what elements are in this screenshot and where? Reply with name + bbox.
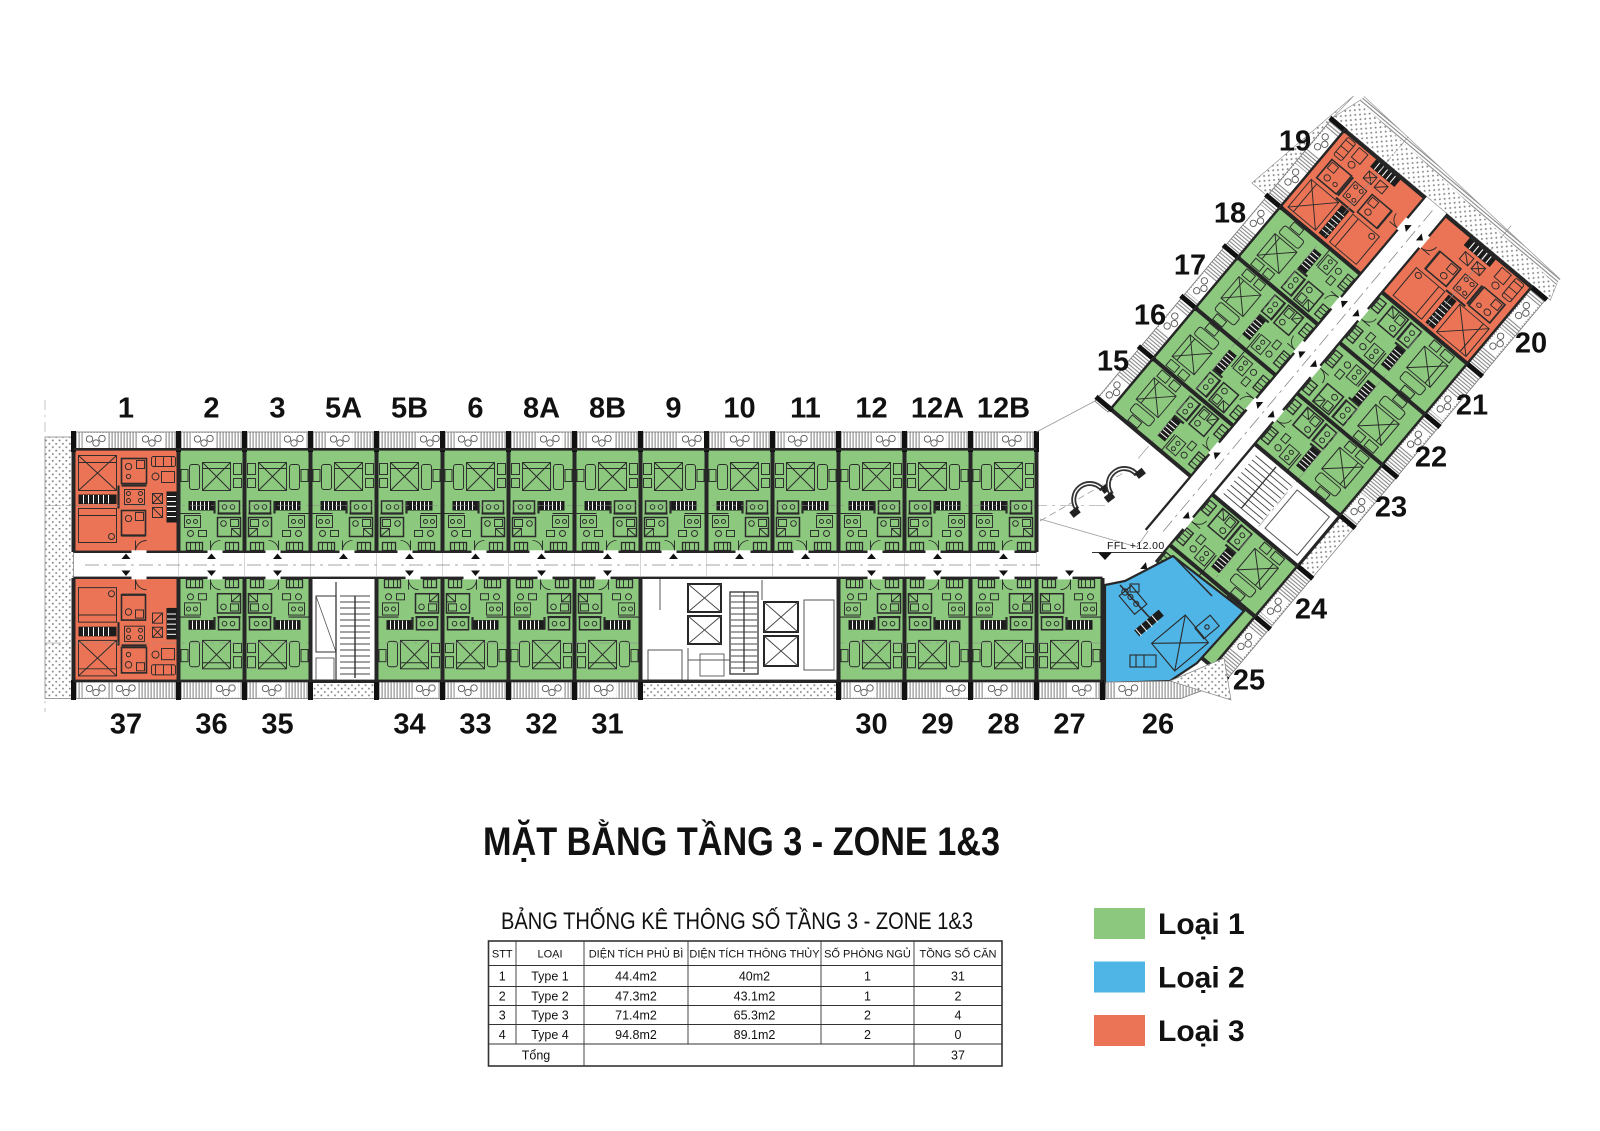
svg-text:24: 24 — [1295, 594, 1327, 626]
svg-text:5B: 5B — [391, 393, 428, 425]
svg-text:8A: 8A — [523, 393, 560, 425]
svg-text:12B: 12B — [977, 393, 1030, 425]
svg-text:12: 12 — [855, 393, 887, 425]
svg-text:4: 4 — [955, 1009, 962, 1023]
svg-text:35: 35 — [261, 709, 293, 741]
svg-text:19: 19 — [1279, 126, 1311, 158]
svg-text:Loại 2: Loại 2 — [1158, 962, 1245, 995]
svg-text:Loại 3: Loại 3 — [1158, 1015, 1245, 1048]
svg-text:44.4m2: 44.4m2 — [615, 970, 657, 984]
svg-text:15: 15 — [1097, 346, 1129, 378]
svg-text:23: 23 — [1375, 492, 1407, 524]
svg-text:MẶT BẰNG TẦNG 3 - ZONE 1&3: MẶT BẰNG TẦNG 3 - ZONE 1&3 — [483, 818, 1000, 864]
svg-text:LOẠI: LOẠI — [537, 949, 562, 961]
svg-text:2: 2 — [955, 990, 962, 1004]
svg-text:4: 4 — [499, 1028, 506, 1042]
svg-text:1: 1 — [499, 970, 506, 984]
svg-text:47.3m2: 47.3m2 — [615, 990, 657, 1004]
svg-text:21: 21 — [1456, 390, 1488, 422]
svg-text:Type 2: Type 2 — [531, 990, 569, 1004]
svg-text:5A: 5A — [325, 393, 362, 425]
svg-text:BẢNG THỐNG KÊ THÔNG SỐ TẦNG 3: BẢNG THỐNG KÊ THÔNG SỐ TẦNG 3 - ZONE 1&3 — [501, 906, 973, 935]
svg-text:Tổng: Tổng — [522, 1049, 551, 1063]
svg-text:DIỆN TÍCH PHỦ BÌ: DIỆN TÍCH PHỦ BÌ — [589, 948, 684, 961]
svg-text:1: 1 — [864, 990, 871, 1004]
svg-text:2: 2 — [203, 393, 219, 425]
svg-text:20: 20 — [1515, 328, 1547, 360]
svg-text:Loại 1: Loại 1 — [1158, 908, 1245, 941]
svg-text:STT: STT — [492, 949, 513, 961]
svg-text:28: 28 — [987, 709, 1019, 741]
svg-text:Type 3: Type 3 — [531, 1009, 569, 1023]
svg-text:94.8m2: 94.8m2 — [615, 1028, 657, 1042]
svg-text:9: 9 — [665, 393, 681, 425]
svg-text:TỒNG SỐ CĂN: TỒNG SỐ CĂN — [919, 947, 996, 961]
svg-text:65.3m2: 65.3m2 — [734, 1009, 776, 1023]
svg-text:71.4m2: 71.4m2 — [615, 1009, 657, 1023]
svg-text:10: 10 — [723, 393, 755, 425]
svg-text:33: 33 — [459, 709, 491, 741]
svg-text:25: 25 — [1233, 665, 1265, 697]
svg-text:3: 3 — [499, 1009, 506, 1023]
svg-text:16: 16 — [1134, 300, 1166, 332]
svg-text:18: 18 — [1214, 198, 1246, 230]
svg-text:34: 34 — [393, 709, 425, 741]
svg-text:2: 2 — [499, 990, 506, 1004]
svg-text:37: 37 — [951, 1049, 965, 1063]
svg-text:2: 2 — [864, 1009, 871, 1023]
svg-text:2: 2 — [864, 1028, 871, 1042]
svg-text:36: 36 — [195, 709, 227, 741]
svg-text:8B: 8B — [589, 393, 626, 425]
svg-text:22: 22 — [1415, 442, 1447, 474]
svg-text:DIỆN TÍCH THÔNG THỦY: DIỆN TÍCH THÔNG THỦY — [689, 948, 820, 961]
svg-text:SỐ PHÒNG NGỦ: SỐ PHÒNG NGỦ — [824, 947, 911, 961]
svg-text:29: 29 — [921, 709, 953, 741]
svg-text:Type 4: Type 4 — [531, 1028, 569, 1042]
svg-text:89.1m2: 89.1m2 — [734, 1028, 776, 1042]
svg-text:31: 31 — [591, 709, 623, 741]
svg-text:43.1m2: 43.1m2 — [734, 990, 776, 1004]
svg-text:12A: 12A — [911, 393, 964, 425]
svg-text:11: 11 — [790, 393, 821, 425]
svg-text:32: 32 — [525, 709, 557, 741]
svg-text:31: 31 — [951, 970, 965, 984]
svg-text:1: 1 — [118, 393, 134, 425]
svg-text:6: 6 — [467, 393, 483, 425]
svg-text:37: 37 — [110, 709, 142, 741]
svg-text:3: 3 — [269, 393, 285, 425]
svg-text:FFL +12.00: FFL +12.00 — [1107, 540, 1165, 552]
svg-text:Type 1: Type 1 — [531, 970, 569, 984]
svg-text:30: 30 — [855, 709, 887, 741]
svg-text:17: 17 — [1174, 250, 1206, 282]
svg-text:40m2: 40m2 — [739, 970, 770, 984]
svg-text:0: 0 — [955, 1028, 962, 1042]
svg-text:1: 1 — [864, 970, 871, 984]
svg-text:27: 27 — [1053, 709, 1085, 741]
svg-text:26: 26 — [1142, 709, 1174, 741]
